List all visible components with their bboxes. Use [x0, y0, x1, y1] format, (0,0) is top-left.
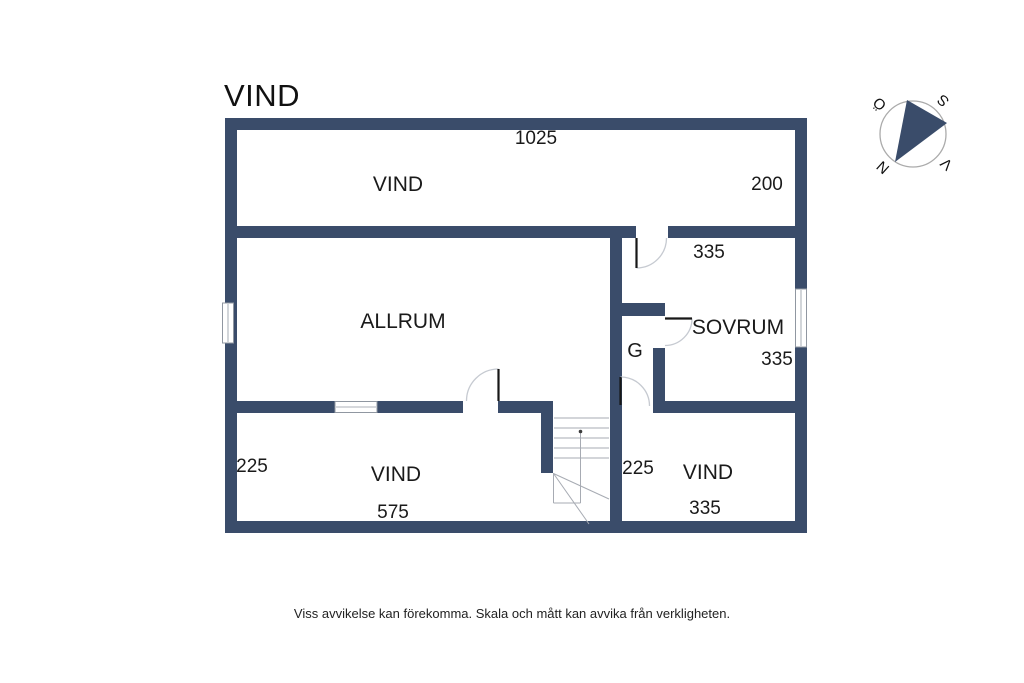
window-right-wall — [796, 289, 807, 347]
door-sovrum — [665, 319, 692, 346]
compass: N S Ö V — [840, 60, 987, 207]
floor-plan-drawing: VIND ALLRUM SOVRUM G VIND VIND 1025 200 … — [0, 0, 1024, 683]
windows — [223, 289, 807, 413]
room-label-vind-top: VIND — [373, 173, 423, 196]
floor-plan-page: VIND — [0, 0, 1024, 683]
dim-vind-top-depth: 200 — [751, 174, 783, 195]
dim-vind-bottom-right-width: 335 — [689, 498, 721, 519]
wall-sovrum-south — [653, 401, 795, 413]
wall-garderob-north-stub — [622, 303, 665, 316]
window-left-wall — [223, 303, 234, 343]
dim-vind-bottom-left-width: 575 — [377, 502, 409, 523]
wall-garderob-east — [653, 348, 665, 413]
compass-label-north: N — [874, 157, 893, 177]
room-label-garderob: G — [627, 340, 643, 362]
room-label-allrum: ALLRUM — [360, 310, 445, 333]
dim-stair-hall-depth: 225 — [622, 458, 654, 479]
dim-overall-width: 1025 — [515, 128, 557, 149]
room-label-vind-bottom-left: VIND — [371, 463, 421, 486]
door-garderob — [621, 377, 650, 406]
wall-outer-bottom — [225, 521, 807, 533]
window-allrum-south-wall — [335, 402, 377, 413]
room-label-vind-bottom-right: VIND — [683, 461, 733, 484]
footer-disclaimer: Viss avvikelse kan förekomma. Skala och … — [0, 606, 1024, 621]
compass-label-west: V — [937, 154, 956, 173]
stair-direction-dot — [579, 430, 583, 434]
door-vind-top-to-hall — [637, 238, 667, 268]
room-label-sovrum: SOVRUM — [692, 316, 784, 339]
dim-hall-width: 335 — [693, 242, 725, 263]
dim-sovrum-depth: 335 — [761, 349, 793, 370]
door-allrum — [467, 369, 499, 401]
wall-vind-top-south-right — [668, 226, 807, 238]
staircase — [554, 418, 610, 524]
wall-vind-top-south-left — [225, 226, 636, 238]
dim-vind-bottom-left-depth: 225 — [236, 456, 268, 477]
compass-label-south: S — [934, 91, 953, 110]
compass-label-east: Ö — [869, 93, 890, 114]
wall-stairwell — [541, 401, 553, 473]
